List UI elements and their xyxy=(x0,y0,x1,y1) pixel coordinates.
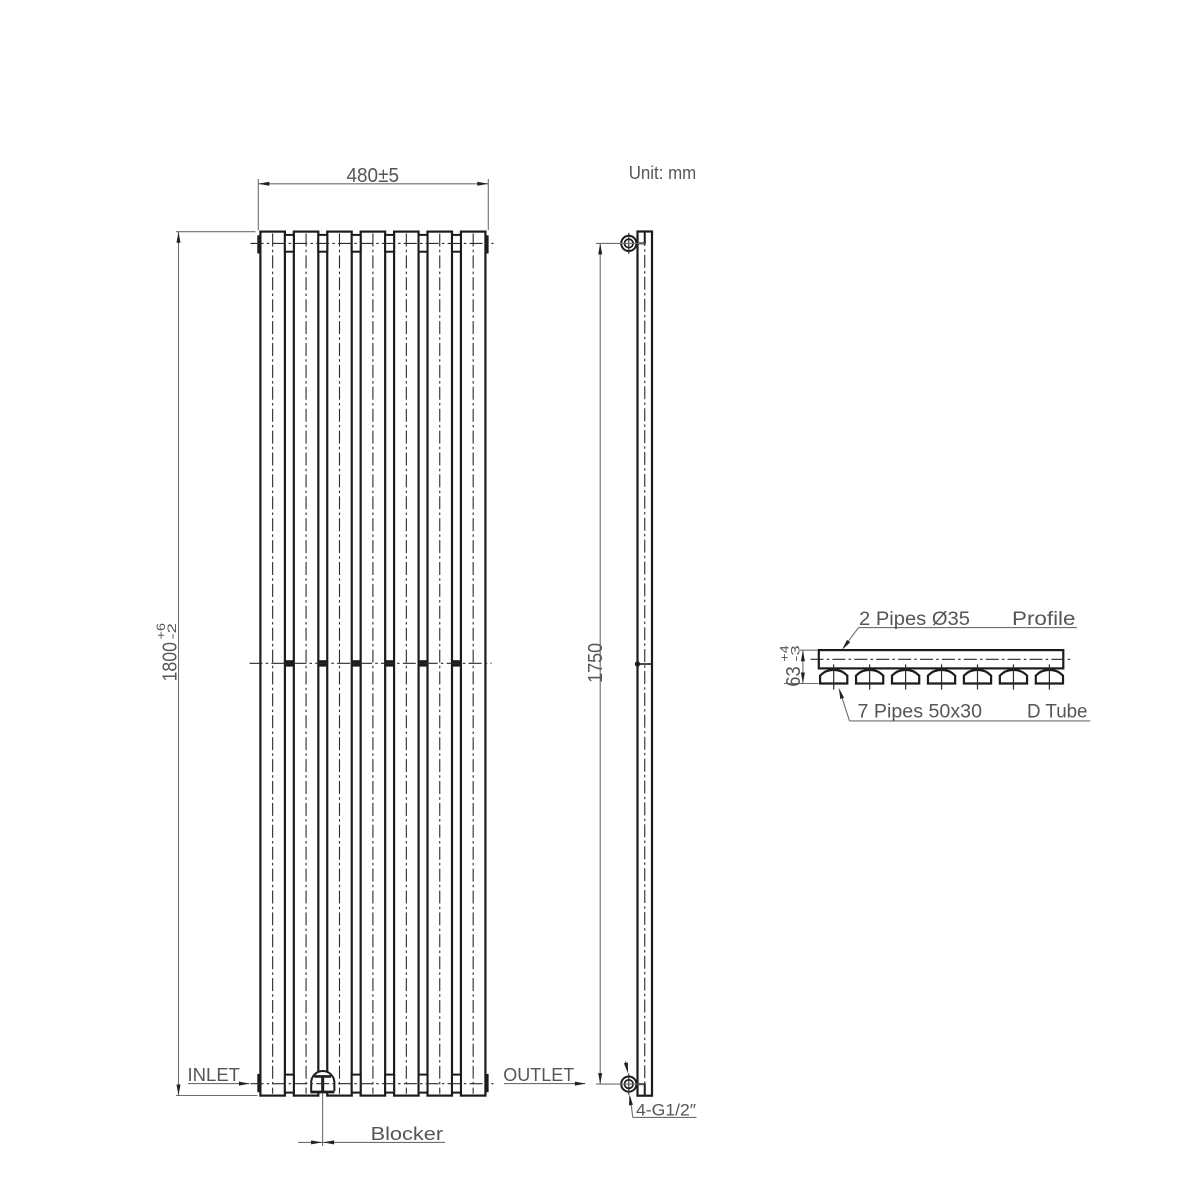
svg-text:480±5: 480±5 xyxy=(347,164,400,187)
svg-text:4-G1/2″: 4-G1/2″ xyxy=(636,1100,696,1119)
svg-text:OUTLET: OUTLET xyxy=(503,1064,574,1085)
svg-text:-2: -2 xyxy=(167,623,179,640)
svg-text:Profile: Profile xyxy=(1012,608,1076,630)
svg-text:7 Pipes 50x30: 7 Pipes 50x30 xyxy=(858,701,983,723)
svg-text:-3: -3 xyxy=(791,645,803,662)
svg-text:D Tube: D Tube xyxy=(1027,701,1088,723)
svg-text:1750: 1750 xyxy=(584,643,607,683)
svg-text:Unit: mm: Unit: mm xyxy=(629,163,697,183)
svg-text:Blocker: Blocker xyxy=(371,1123,444,1144)
svg-text:1800: 1800 xyxy=(159,642,182,682)
svg-text:2 Pipes Ø35: 2 Pipes Ø35 xyxy=(859,608,970,630)
svg-text:63: 63 xyxy=(782,666,805,687)
svg-text:INLET: INLET xyxy=(188,1064,241,1085)
